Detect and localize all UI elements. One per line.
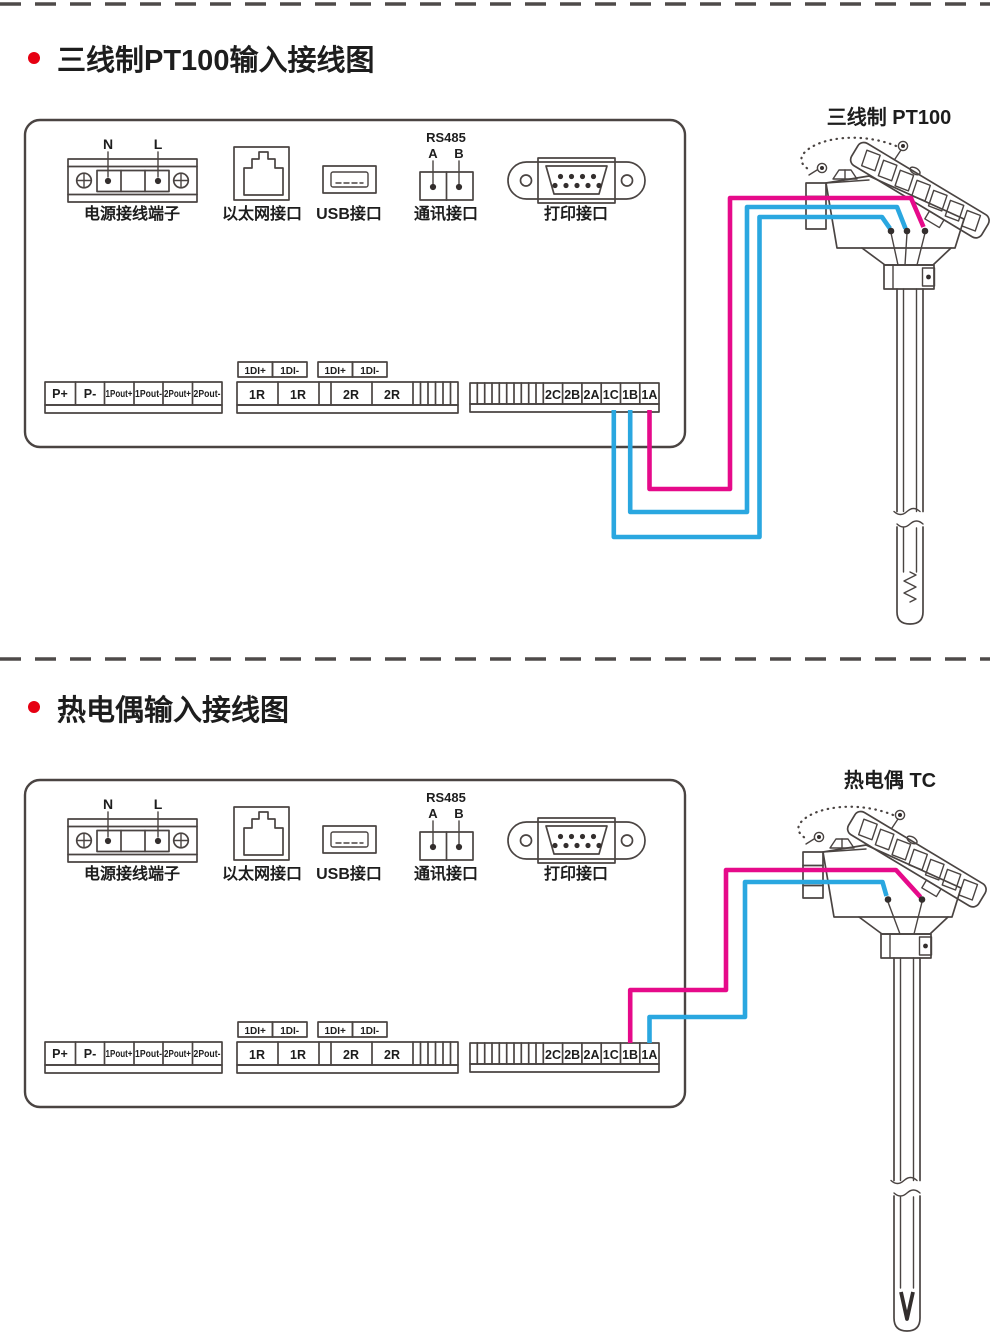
cell-label: 1R bbox=[249, 388, 265, 402]
cell-label: 2R bbox=[384, 388, 400, 402]
cell-label: 1Pout- bbox=[135, 389, 162, 400]
head-terminal-dot bbox=[885, 896, 892, 903]
pt100-sensor-label: 三线制 PT100 bbox=[827, 105, 951, 129]
ethernet-port-label: 以太网接口 bbox=[222, 204, 302, 223]
terminal-strip-relay: 1R 1R 2R 2R bbox=[237, 382, 458, 413]
printer-port: 打印接口 bbox=[508, 158, 645, 223]
section-2-title: 热电偶输入接线图 bbox=[28, 693, 289, 727]
cell-label: 1B bbox=[622, 388, 638, 402]
pin-a-label: A bbox=[428, 146, 438, 161]
terminal-strip-input: 2C 2B 2A 1C 1B 1A bbox=[470, 383, 659, 412]
cell-label: 2Pout+ bbox=[164, 389, 191, 400]
cell-label: 2B bbox=[564, 388, 580, 402]
di-label: 1DI+ bbox=[244, 366, 266, 377]
mount-hole-icon bbox=[622, 175, 633, 186]
head-terminal-dot bbox=[904, 228, 911, 235]
probe-tip-tube bbox=[897, 527, 923, 624]
cell-label: 2Pout- bbox=[194, 389, 221, 400]
head-terminal-dot bbox=[919, 896, 926, 903]
cell-label: 1R bbox=[290, 388, 306, 402]
di-label: 1DI+ bbox=[324, 366, 346, 377]
tc-sensor-label: 热电偶 TC bbox=[844, 768, 936, 792]
wiring-diagrams-svg: 三线制PT100输入接线图 热电偶输入接线图 N L bbox=[0, 0, 990, 1337]
cell-label: 2C bbox=[545, 388, 561, 402]
pin-n-label: N bbox=[103, 136, 113, 152]
head-terminal-dot bbox=[922, 228, 929, 235]
wire-1b bbox=[630, 207, 905, 512]
terminal-dot bbox=[155, 178, 161, 184]
cell-label: 1C bbox=[603, 388, 619, 402]
section-1-title-text: 三线制PT100输入接线图 bbox=[57, 43, 374, 77]
rs485-label: RS485 bbox=[426, 130, 466, 145]
terminal-dot bbox=[456, 184, 462, 190]
pin-l-label: L bbox=[154, 136, 163, 152]
head-lid bbox=[843, 136, 990, 248]
head-terminal-dot bbox=[888, 228, 895, 235]
break-squiggle bbox=[897, 521, 923, 527]
bullet-icon bbox=[28, 52, 40, 64]
cell-label: 2A bbox=[584, 388, 600, 402]
tc-junction-icon bbox=[901, 1292, 913, 1319]
bullet-icon bbox=[28, 701, 40, 713]
comm-port-label: 通讯接口 bbox=[414, 204, 478, 223]
usb-port: USB接口 bbox=[316, 166, 382, 223]
cell-label: P+ bbox=[52, 387, 68, 401]
rtd-element-icon bbox=[904, 572, 916, 602]
cell-label: 1Pout+ bbox=[106, 389, 133, 400]
mount-hole-icon bbox=[521, 175, 532, 186]
tc-wires bbox=[630, 870, 920, 1043]
head-body bbox=[826, 176, 964, 248]
power-port-label: 电源接线端子 bbox=[84, 204, 180, 223]
usb-port-label: USB接口 bbox=[316, 204, 382, 223]
pt100-wires bbox=[614, 198, 924, 537]
ethernet-port: 以太网接口 bbox=[222, 147, 302, 223]
comm-port: RS485 A B 通讯接口 bbox=[414, 130, 478, 223]
terminal-dot bbox=[105, 178, 111, 184]
db9-icon bbox=[546, 166, 607, 194]
sensor-head-2 bbox=[798, 805, 990, 1183]
di-label: 1DI- bbox=[360, 366, 379, 377]
collar bbox=[884, 265, 935, 289]
lid-latch bbox=[925, 211, 944, 227]
di-labels: 1DI+ 1DI- 1DI+ 1DI- bbox=[238, 362, 387, 377]
rj45-icon bbox=[244, 152, 283, 195]
sensor-head bbox=[801, 136, 990, 514]
section-1-title: 三线制PT100输入接线图 bbox=[28, 43, 374, 77]
recorder-panel-2 bbox=[25, 780, 685, 1107]
power-terminal-port: N L 电源接线端子 bbox=[68, 136, 197, 223]
pin-b-label: B bbox=[454, 146, 463, 161]
wire-1a bbox=[650, 198, 924, 489]
break-squiggle bbox=[894, 1190, 920, 1196]
cell-label: 1A bbox=[641, 388, 657, 402]
recorder-panel: N L 电源接线端子 以太网接口 USB接口 RS485 A B bbox=[25, 120, 685, 447]
printer-port-label: 打印接口 bbox=[544, 204, 608, 223]
section-2-title-text: 热电偶输入接线图 bbox=[57, 693, 289, 727]
cell-label: 2R bbox=[343, 388, 359, 402]
cell-label: P- bbox=[84, 387, 97, 401]
terminal-dot bbox=[430, 184, 436, 190]
probe-stem bbox=[894, 289, 923, 515]
usb-slot-icon bbox=[331, 172, 368, 187]
manual-page: 三线制PT100输入接线图 热电偶输入接线图 N L bbox=[0, 0, 990, 1337]
terminal-strip-power-out: P+ P- 1Pout+ 1Pout- 2Pout+ 2Pout- bbox=[45, 382, 222, 413]
di-label: 1DI- bbox=[280, 366, 299, 377]
